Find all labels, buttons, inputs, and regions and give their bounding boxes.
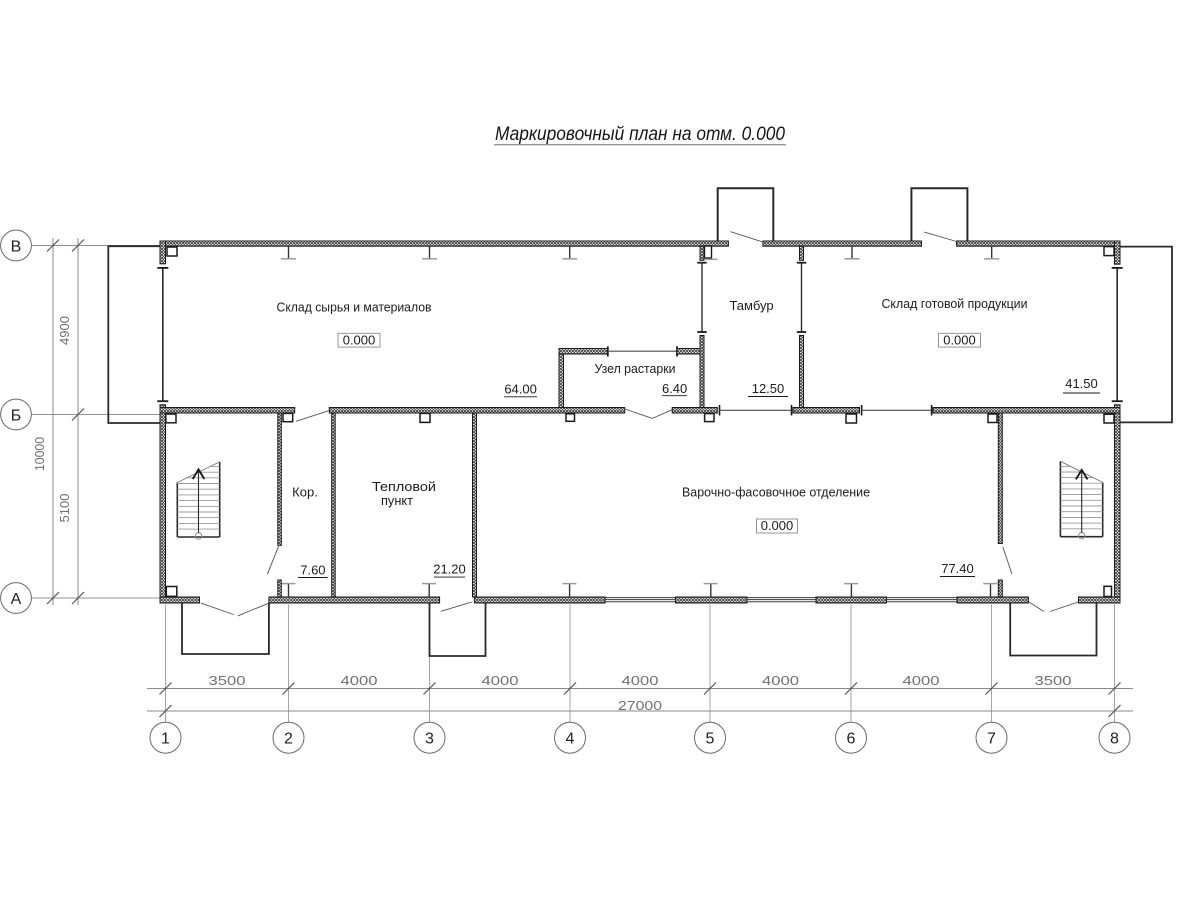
svg-text:Кор.: Кор. <box>292 485 318 500</box>
svg-text:4000: 4000 <box>762 673 799 688</box>
svg-text:2: 2 <box>284 731 293 748</box>
svg-text:21.20: 21.20 <box>433 562 466 577</box>
svg-text:Б: Б <box>11 408 22 425</box>
svg-text:пункт: пункт <box>381 493 413 508</box>
svg-text:Тепловой: Тепловой <box>372 479 436 494</box>
svg-text:Тамбур: Тамбур <box>729 298 773 313</box>
svg-text:0.000: 0.000 <box>943 332 976 347</box>
svg-text:64.00: 64.00 <box>504 382 537 397</box>
svg-text:4: 4 <box>566 731 575 748</box>
svg-text:3500: 3500 <box>209 673 246 688</box>
svg-text:4000: 4000 <box>482 673 519 688</box>
svg-text:41.50: 41.50 <box>1065 376 1098 391</box>
svg-text:Узел растарки: Узел растарки <box>595 361 676 376</box>
svg-text:4000: 4000 <box>622 673 659 688</box>
svg-text:6: 6 <box>847 731 856 748</box>
svg-text:Маркировочный план на отм. 0.0: Маркировочный план на отм. 0.000 <box>495 124 785 145</box>
svg-text:В: В <box>11 239 22 256</box>
svg-text:12.50: 12.50 <box>752 381 785 396</box>
svg-text:4000: 4000 <box>903 673 940 688</box>
svg-text:5: 5 <box>706 731 715 748</box>
svg-text:27000: 27000 <box>618 698 662 713</box>
svg-text:7: 7 <box>987 731 996 748</box>
svg-text:4000: 4000 <box>341 673 378 688</box>
svg-text:7.60: 7.60 <box>300 563 325 578</box>
svg-text:77.40: 77.40 <box>941 561 974 576</box>
svg-text:Склад готовой продукции: Склад готовой продукции <box>882 296 1028 311</box>
svg-text:1: 1 <box>161 731 170 748</box>
svg-text:0.000: 0.000 <box>343 332 376 347</box>
svg-text:8: 8 <box>1110 731 1119 748</box>
svg-text:Склад сырья и материалов: Склад сырья и материалов <box>277 300 432 315</box>
svg-text:0.000: 0.000 <box>761 518 794 533</box>
svg-text:3: 3 <box>425 731 434 748</box>
svg-text:Варочно-фасовочное отделение: Варочно-фасовочное отделение <box>682 485 870 500</box>
svg-text:5100: 5100 <box>57 494 72 523</box>
svg-text:3500: 3500 <box>1035 673 1072 688</box>
svg-text:А: А <box>11 591 22 608</box>
svg-text:6.40: 6.40 <box>662 381 687 396</box>
svg-text:10000: 10000 <box>32 437 47 471</box>
svg-text:4900: 4900 <box>57 316 72 345</box>
